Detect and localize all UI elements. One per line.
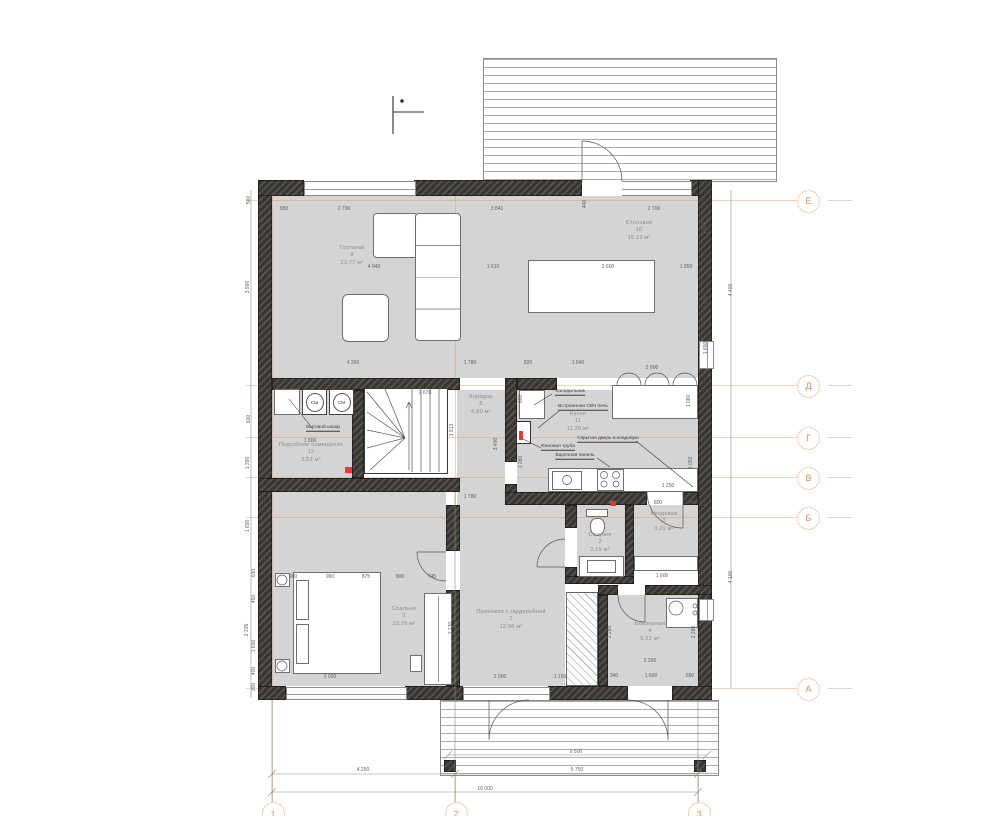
dimension-label: 1 600	[251, 640, 257, 653]
dimension-label: 3 400	[493, 438, 499, 451]
dimension-label: 2 000	[494, 674, 507, 680]
dimension-label: 2 130	[448, 622, 454, 635]
dimension-label: 1 390	[245, 457, 251, 470]
room-area: 19,13 м²	[626, 235, 653, 242]
appliance-label: СМ	[330, 390, 353, 414]
dimension-label: 3 600	[602, 264, 615, 270]
room-label-12: Подсобное помещение123,52 м²	[279, 442, 343, 464]
appliance-СМ: СМ	[329, 389, 354, 415]
room-area: 2,15 м²	[588, 547, 611, 554]
dimension-label: 2 700	[338, 206, 351, 212]
dimension-label: 1 913	[449, 424, 455, 437]
dimension-label: 5 750	[571, 767, 584, 773]
dimension-label: 1 780	[464, 360, 477, 366]
room-number: 10	[626, 227, 653, 234]
dimension-label: 450	[251, 595, 257, 603]
dimension-label: 340	[610, 673, 618, 679]
room-number: 12	[279, 449, 343, 456]
room-number: 1	[476, 616, 545, 623]
dimension-label: 800	[654, 500, 662, 506]
dimension-label: 1 800	[304, 438, 317, 444]
room-area: 11,20 м²	[567, 426, 589, 433]
dimension-label: 4 100	[728, 571, 734, 584]
room-name: Санузел	[588, 532, 611, 539]
annotation-6: Бытовой шкаф	[306, 425, 340, 432]
dimension-label: 1 050	[688, 457, 694, 470]
room-area: 6,50 м²	[469, 409, 493, 416]
dimension-label: 3 000	[324, 674, 337, 680]
dimension-label: 400	[251, 667, 257, 675]
dimension-label: 400	[690, 500, 698, 506]
dimension-label: 1 650	[703, 342, 709, 355]
dimension-label: 1 660	[702, 222, 708, 235]
dimension-label: 4 360	[347, 360, 360, 366]
text-layer: Гостиная923,77 м²Столовая1019,13 м²Корид…	[0, 0, 1000, 816]
dimension-label: 745	[428, 574, 436, 580]
dimension-label: 1 850	[680, 264, 693, 270]
dimension-label: 400	[608, 500, 616, 506]
room-area: 12,96 м²	[476, 624, 545, 631]
dimension-label: 950	[280, 206, 288, 212]
dimension-label: 3 990	[245, 281, 251, 294]
room-label-4: Бойлерная45,22 м²	[635, 621, 665, 643]
room-number: 5	[392, 613, 416, 620]
annotation-2: Встроенная СВЧ печь	[558, 404, 608, 411]
room-name: Прихожая с гардеробной	[476, 609, 545, 616]
room-name: Столовая	[626, 220, 653, 227]
appliance-СШ: СШ	[302, 389, 327, 415]
dimension-label: 600	[246, 415, 252, 423]
room-name: Бойлерная	[635, 621, 665, 628]
room-area: 3,52 м²	[279, 457, 343, 464]
dimension-label: 600	[518, 395, 524, 403]
room-number: 4	[635, 628, 665, 635]
dimension-label: 1 600	[656, 573, 669, 579]
annotation-1: Холодильник	[555, 389, 585, 396]
dimension-label: 800	[396, 574, 404, 580]
room-name: Гостиная	[339, 245, 364, 252]
dimension-label: 300	[251, 683, 257, 691]
room-label-10: Столовая1019,13 м²	[626, 220, 653, 242]
dimension-label: 1 780	[464, 494, 477, 500]
room-label-1: Прихожая с гардеробной112,96 м²	[476, 609, 545, 631]
dimension-label: 1 640	[572, 360, 585, 366]
dimension-label: 2 280	[607, 626, 613, 639]
room-name: Коридор	[469, 394, 493, 401]
dimension-label: 1 610	[487, 264, 500, 270]
room-number: 9	[339, 252, 364, 259]
room-label-8: Коридор86,50 м²	[469, 394, 493, 416]
dimension-label: 500	[246, 196, 252, 204]
dimension-label: 630	[251, 569, 257, 577]
dimension-label: 1 250	[662, 483, 675, 489]
room-area: 5,22 м²	[635, 636, 665, 643]
dimension-label: 650	[686, 673, 694, 679]
dimension-label: 2 290	[644, 658, 657, 664]
room-number: 2	[588, 539, 611, 546]
room-number: 8	[469, 401, 493, 408]
room-label-5: Спальня513,79 м²	[392, 606, 416, 628]
dimension-label: 1 080	[686, 395, 692, 408]
dimension-label: 2 335	[244, 624, 250, 637]
dimension-label: 875	[362, 574, 370, 580]
annotation-3: Скрытая дверь в кладовую	[577, 436, 638, 443]
dimension-label: 2 670	[419, 390, 432, 396]
dimension-label: 1 600	[645, 673, 658, 679]
room-number: 3	[651, 518, 678, 525]
appliance-label: СШ	[303, 390, 326, 414]
dimension-label: 1 220	[703, 296, 709, 309]
room-area: 23,77 м²	[339, 260, 364, 267]
annotation-4: Фановая труба	[541, 444, 575, 451]
dimension-label: 4 400	[728, 284, 734, 297]
dimension-label: 10 000	[477, 786, 492, 792]
room-label-3: Кладовая33,20 м²	[651, 511, 678, 533]
dimension-label: 4 040	[368, 264, 381, 270]
floor-plan-canvas: ЕДГВБА123	[0, 0, 1000, 816]
dimension-label: 4 250	[357, 767, 370, 773]
dimension-label: 2 700	[648, 206, 661, 212]
annotation-5: Варочная панель	[555, 453, 594, 460]
dimension-label: 6 500	[570, 749, 583, 755]
room-label-9: Гостиная923,77 м²	[339, 245, 364, 267]
dimension-label: 1 280	[518, 456, 524, 469]
dimension-label: 820	[524, 360, 532, 366]
room-name: Кухня	[567, 411, 589, 418]
dimension-label: 3 841	[491, 206, 504, 212]
dimension-label: 2 000	[646, 365, 659, 371]
room-area: 3,20 м²	[651, 526, 678, 533]
dimension-label: 900	[326, 574, 334, 580]
room-label-11: Кухня1111,20 м²	[567, 411, 589, 433]
room-label-2: Санузел22,15 м²	[588, 532, 611, 554]
room-name: Кладовая	[651, 511, 678, 518]
dimension-label: 2 280	[691, 626, 697, 639]
dimension-label: 1 150	[554, 674, 567, 680]
room-number: 11	[567, 418, 589, 425]
dimension-label: 440	[582, 200, 588, 208]
room-area: 13,79 м²	[392, 621, 416, 628]
dimension-label: 900	[289, 574, 297, 580]
dimension-label: 1 650	[245, 520, 251, 533]
room-name: Спальня	[392, 606, 416, 613]
